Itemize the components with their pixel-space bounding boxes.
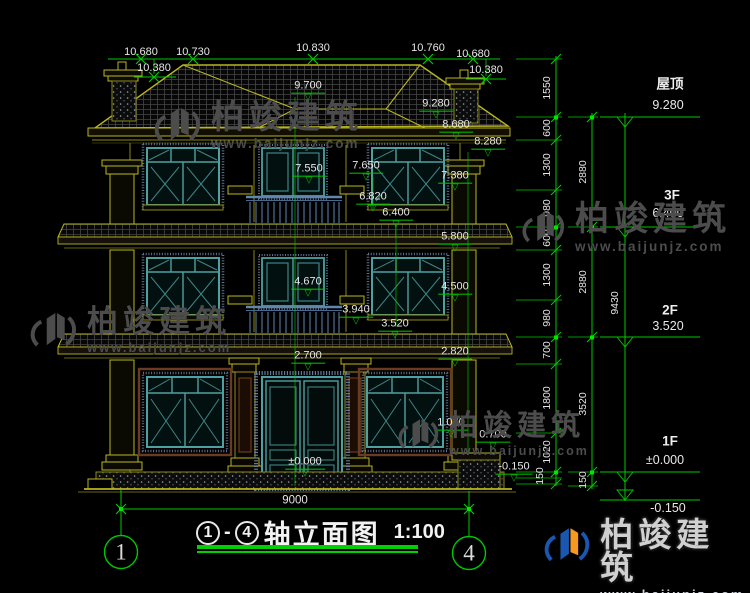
dim-text: 700 <box>542 338 554 362</box>
watermark-brand: 柏竣建筑 <box>575 202 731 236</box>
watermark-url: www.baijunjz.com <box>449 444 589 458</box>
elev-4670: 4.670▽ <box>291 276 325 297</box>
dim-text: -0.150 <box>647 502 688 516</box>
level-triangle-icon: ▽ <box>353 319 360 325</box>
level-triangle-icon: ▽ <box>433 113 440 119</box>
axis-bubble-1: 1 <box>112 539 130 564</box>
top-dim-10680-left: 10.680 <box>122 46 160 58</box>
dim-text: 9430 <box>610 288 622 317</box>
chain-1800: 1800 <box>542 383 554 412</box>
dim-text: 1F <box>659 435 681 450</box>
watermark-top-center: 柏竣建筑 www.baijunjz.com <box>152 100 363 152</box>
level-triangle-icon: ▽ <box>392 333 399 339</box>
elev-7550: 7.550▽ <box>292 163 326 184</box>
dim-text: 10.380 <box>467 64 505 76</box>
level-triangle-icon: ▽ <box>393 222 400 228</box>
watermark-brand: 柏竣建筑 <box>87 306 231 337</box>
dim-text: 150 <box>578 468 590 492</box>
title-scale: 1:100 <box>394 521 445 544</box>
axis-bubble-4: 4 <box>460 540 478 565</box>
elev-8280: 8.280▽ <box>471 136 505 157</box>
dim-text: 3.520 <box>649 320 686 334</box>
watermark-right: 柏竣建筑 www.baijunjz.com <box>520 202 731 254</box>
dim-text: ±0.000 <box>643 454 687 468</box>
dim-text: 980 <box>542 306 554 330</box>
top-dim-10730: 10.730 <box>174 46 212 58</box>
chain-150-a: 150 <box>535 464 547 488</box>
floor-value-ground: -0.150 <box>647 502 688 516</box>
brand-logo-icon <box>28 306 78 356</box>
dim-text: 1800 <box>542 383 554 412</box>
brand-logo-icon <box>542 518 591 574</box>
watermark-url: www.baijunjz.com <box>211 136 363 151</box>
watermark-url: www.baijunjz.com <box>600 587 750 593</box>
elev-2700: 2.700▽ <box>291 350 325 371</box>
elev-6400: 6.400▽ <box>379 207 413 228</box>
dim-text: 10.830 <box>294 42 332 54</box>
level-triangle-icon: ▽ <box>452 361 459 367</box>
level-triangle-icon: ▽ <box>452 296 459 302</box>
title-underline-thin <box>197 551 418 553</box>
level-triangle-icon: ▽ <box>302 471 309 477</box>
chain-1300-a: 1300 <box>542 150 554 179</box>
watermark-left: 柏竣建筑 www.baijunjz.com <box>28 306 231 356</box>
top-dim-10830: 10.830 <box>294 42 332 54</box>
title-axis-circle-to: 4 <box>235 521 259 545</box>
title-underline-thick <box>197 545 418 549</box>
dim-text: 600 <box>542 116 554 140</box>
watermark-brand: 柏竣建筑 <box>449 412 589 441</box>
watermark-url: www.baijunjz.com <box>575 239 731 254</box>
dim-text: 150 <box>535 464 547 488</box>
level-triangle-icon: ▽ <box>453 134 460 140</box>
elevation-drawing <box>0 0 750 593</box>
elev-3940: 3.940▽ <box>339 304 373 325</box>
chain-980-b: 980 <box>542 306 554 330</box>
elev-0000: ±0.000▽ <box>285 456 325 477</box>
dim-text: 10.380 <box>135 62 173 74</box>
elev-minus0150: -0.150▽ <box>495 461 532 482</box>
dim-text: 10.730 <box>174 46 212 58</box>
dim-text: 2880 <box>578 267 590 296</box>
floor-value-roof: 9.280 <box>649 99 686 113</box>
chain-2880-a: 2880 <box>578 157 590 186</box>
elev-5800: 5.800▽ <box>438 231 472 252</box>
level-triangle-icon: ▽ <box>452 185 459 191</box>
dim-text: 10.680 <box>122 46 160 58</box>
title-axis-separator: - <box>224 521 231 544</box>
chain-2880-b: 2880 <box>578 267 590 296</box>
watermark-lower-right: 柏竣建筑 www.baijunjz.com <box>396 412 589 458</box>
top-dim-10380-left: 10.380 <box>135 62 173 74</box>
floor-value-2f: 3.520 <box>649 320 686 334</box>
level-triangle-icon: ▽ <box>511 476 518 482</box>
watermark-url: www.baijunjz.com <box>87 340 231 355</box>
elev-4500: 4.500▽ <box>438 281 472 302</box>
level-triangle-icon: ▽ <box>306 178 313 184</box>
dim-text: 1550 <box>542 73 554 102</box>
floor-label-1f: 1F <box>659 435 681 450</box>
elev-7380: 7.380▽ <box>438 170 472 191</box>
floor-label-2f: 2F <box>659 304 681 319</box>
window-sill <box>143 205 223 210</box>
dim-text: 1 <box>112 539 130 564</box>
dim-text: 1300 <box>542 150 554 179</box>
elev-2820: 2.820▽ <box>438 346 472 367</box>
dim-text: 9.280 <box>649 99 686 113</box>
dim-text: 屋顶 <box>654 78 687 93</box>
level-triangle-icon: ▽ <box>305 291 312 297</box>
brand-logo-icon <box>396 412 440 458</box>
dim-text: 4 <box>460 540 478 565</box>
balcony-bracket <box>228 186 252 194</box>
dim-text: 10.680 <box>454 48 492 60</box>
chain-1550: 1550 <box>542 73 554 102</box>
title-axis-circle-from: 1 <box>196 521 220 545</box>
watermark-brand: 柏竣建筑 <box>600 518 750 584</box>
watermark-brand: 柏竣建筑 <box>211 100 363 133</box>
level-triangle-icon: ▽ <box>485 151 492 157</box>
floor-value-1f: ±0.000 <box>643 454 687 468</box>
chain-700: 700 <box>542 338 554 362</box>
brand-logo-icon <box>152 100 202 152</box>
elev-3520: 3.520▽ <box>378 318 412 339</box>
chain-1300-b: 1300 <box>542 260 554 289</box>
chain-150-b: 150 <box>578 468 590 492</box>
watermark-logo-bottom-right: 柏竣建筑 www.baijunjz.com <box>542 518 750 593</box>
dim-text: 2880 <box>578 157 590 186</box>
level-triangle-icon: ▽ <box>452 246 459 252</box>
top-dim-10380-right: 10.380 <box>467 64 505 76</box>
floor-label-roof: 屋顶 <box>654 78 687 93</box>
dim-text: 2F <box>659 304 681 319</box>
bottom-dim-9000: 9000 <box>279 495 311 508</box>
dim-text: 1300 <box>542 260 554 289</box>
dim-text: 9000 <box>279 495 311 508</box>
balcony-bracket <box>228 296 252 304</box>
elev-7650: 7.650▽ <box>349 160 383 181</box>
dim-text: 10.760 <box>409 42 447 54</box>
elev-9280: 9.280▽ <box>419 98 453 119</box>
level-triangle-icon: ▽ <box>370 206 377 212</box>
chain-9430: 9430 <box>610 288 622 317</box>
top-dim-10680-right: 10.680 <box>454 48 492 60</box>
chain-600-a: 600 <box>542 116 554 140</box>
top-dim-10760: 10.760 <box>409 42 447 54</box>
cad-elevation-canvas: 10.68010.73010.83010.76010.68010.38010.3… <box>0 0 750 593</box>
brand-logo-icon <box>520 202 566 254</box>
level-triangle-icon: ▽ <box>305 365 312 371</box>
elev-8680: 8.680▽ <box>439 119 473 140</box>
level-triangle-icon: ▽ <box>363 175 370 181</box>
